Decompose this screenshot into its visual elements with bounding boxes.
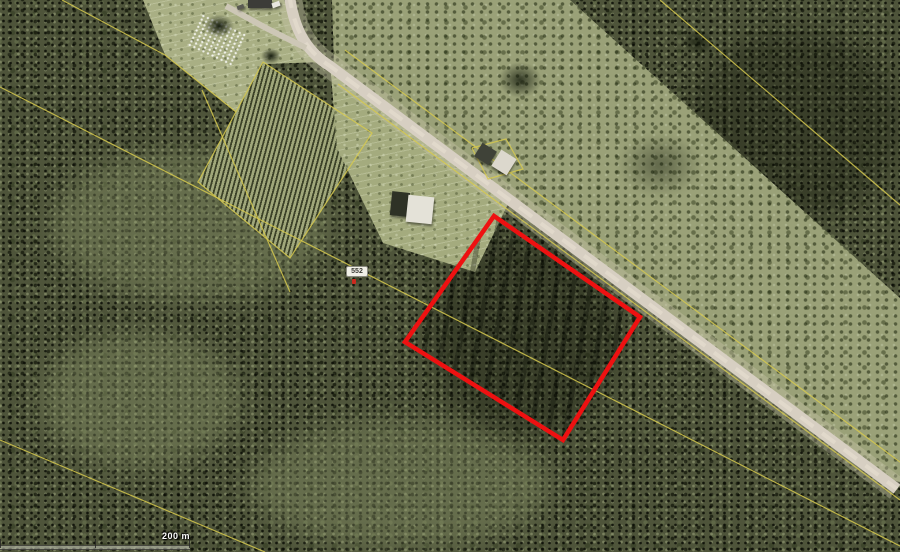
scale-bar-tick <box>0 539 1 548</box>
farm-building <box>248 0 272 8</box>
shrub-clump <box>490 55 550 105</box>
aerial-map[interactable]: 552 200 m <box>0 0 900 552</box>
scale-bar-line <box>0 545 190 550</box>
tree-clump <box>198 10 240 42</box>
tree-clump <box>257 45 285 67</box>
lot-number-badge: 552 <box>346 266 368 277</box>
barn-white-roof <box>406 195 435 225</box>
scale-bar-label: 200 m <box>162 531 190 541</box>
shrub-clump <box>676 24 720 60</box>
forest-light-patch <box>40 330 240 470</box>
survey-marker-dot <box>352 279 356 284</box>
shrub-clump <box>600 120 720 210</box>
scale-bar: 200 m <box>0 526 196 552</box>
forest-light-patch <box>250 420 550 550</box>
scale-bar-tick <box>95 539 96 548</box>
scale-bar-tick <box>189 539 190 548</box>
